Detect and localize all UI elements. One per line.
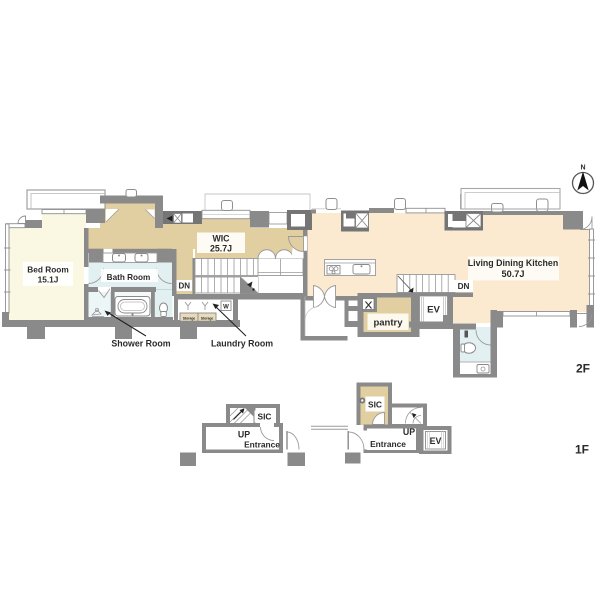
svg-text:pantry: pantry (373, 318, 403, 329)
svg-text:EV: EV (430, 436, 442, 446)
svg-text:SIC: SIC (258, 412, 272, 422)
svg-text:Bed Room: Bed Room (27, 265, 69, 275)
svg-text:UP: UP (403, 427, 415, 437)
svg-text:W: W (223, 305, 229, 311)
svg-text:Laundry Room: Laundry Room (211, 339, 273, 349)
svg-text:SIC: SIC (368, 400, 382, 410)
svg-text:Entrance: Entrance (244, 440, 280, 450)
svg-text:50.7J: 50.7J (502, 269, 525, 279)
svg-text:EV: EV (427, 305, 440, 316)
svg-text:Entrance: Entrance (370, 439, 406, 449)
svg-text:Storage: Storage (183, 317, 196, 321)
svg-text:1F: 1F (575, 443, 589, 457)
svg-text:DN: DN (458, 282, 470, 291)
svg-text:2F: 2F (576, 362, 590, 376)
svg-text:WIC: WIC (212, 234, 230, 244)
svg-text:Bath Room: Bath Room (107, 273, 151, 282)
svg-text:Shower Room: Shower Room (111, 339, 170, 349)
svg-text:25.7J: 25.7J (210, 244, 232, 254)
svg-text:Living Dining Kitchen: Living Dining Kitchen (468, 258, 558, 268)
svg-text:N: N (580, 165, 585, 172)
svg-text:UP: UP (238, 430, 250, 440)
svg-text:Storage: Storage (201, 317, 214, 321)
svg-text:DN: DN (179, 282, 191, 291)
svg-text:15.1J: 15.1J (38, 275, 59, 285)
